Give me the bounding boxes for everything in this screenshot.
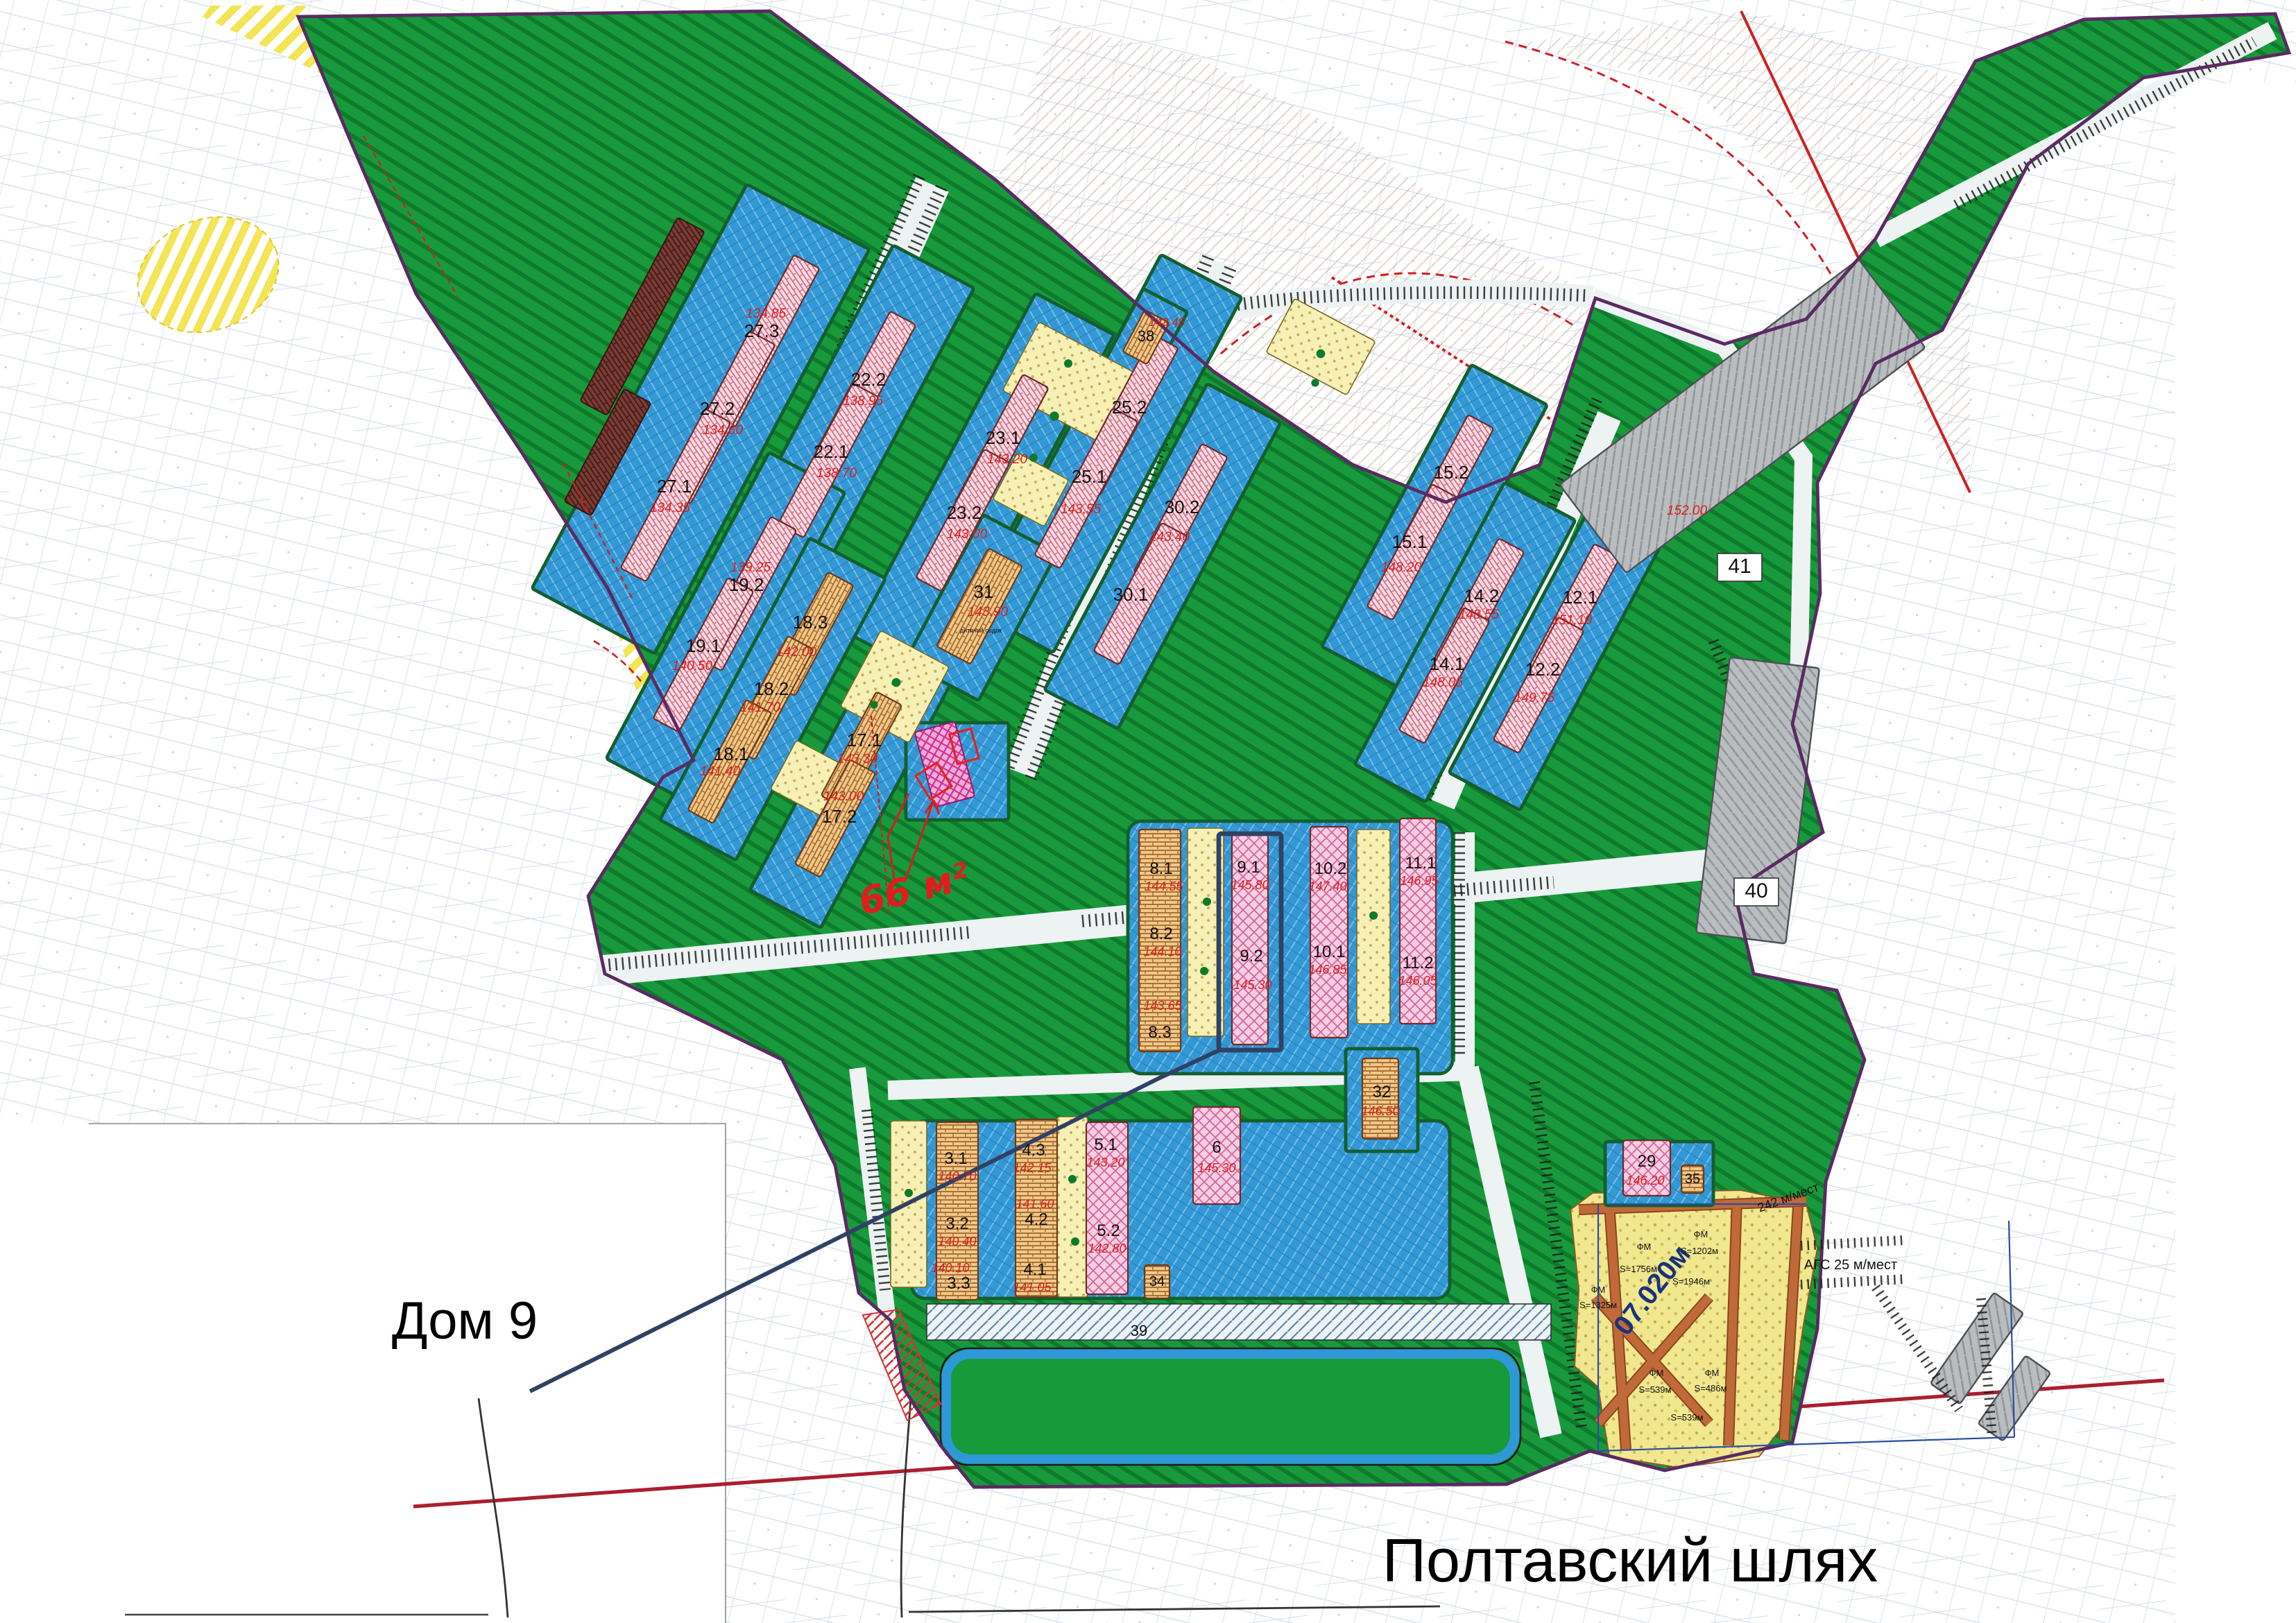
map-label: 12.1 bbox=[1563, 587, 1598, 608]
tree-icon bbox=[1071, 1237, 1079, 1246]
map-label: 4.3 bbox=[1022, 1141, 1045, 1160]
map-label: 143.45 bbox=[1149, 316, 1185, 329]
map-label: 23.1 bbox=[986, 427, 1021, 448]
map-label: 148.55 bbox=[1459, 608, 1500, 622]
map-label: 143.30 bbox=[837, 752, 878, 766]
map-label: 10.2 bbox=[1314, 859, 1347, 878]
map-label: 3.2 bbox=[945, 1214, 968, 1233]
map-label: 18.1 bbox=[714, 744, 749, 764]
map-label: 38 bbox=[1138, 327, 1154, 345]
map-label: 4.2 bbox=[1025, 1210, 1047, 1229]
map-label: ФМ bbox=[1591, 1285, 1606, 1295]
map-label: 5.2 bbox=[1097, 1221, 1120, 1240]
map-label: 140.50 bbox=[672, 659, 713, 673]
map-label: 148.20 bbox=[1381, 560, 1422, 575]
map-label: 146.85 bbox=[1308, 963, 1347, 977]
map-label: 27.2 bbox=[700, 398, 735, 419]
map-label: S=539м bbox=[1671, 1412, 1704, 1423]
map-label: 30.1 bbox=[1113, 584, 1149, 605]
map-label: S=1325м bbox=[1579, 1300, 1617, 1310]
tree-icon bbox=[1369, 911, 1378, 920]
map-label: 149.75 bbox=[1514, 691, 1555, 705]
map-label: 145.80 bbox=[1231, 878, 1269, 892]
map-label: 17.2 bbox=[822, 806, 857, 827]
map-label: S=1946м bbox=[1672, 1276, 1710, 1287]
map-label: 144.55 bbox=[1145, 879, 1183, 893]
map-label: 134.35 bbox=[650, 501, 691, 515]
map-label: 143.55 bbox=[1061, 502, 1102, 517]
map-label: 143.00 bbox=[947, 527, 988, 542]
scanned-master-plan-page: 27.3134.8527.2134.6027.1134.3522.2138.95… bbox=[0, 0, 2296, 1623]
map-label: дитячий садок bbox=[960, 627, 1002, 634]
map-label: 8.3 bbox=[1148, 1023, 1171, 1042]
map-label: 141.05 bbox=[1013, 1280, 1052, 1294]
map-label: 31 bbox=[974, 581, 994, 602]
map-label: 39 bbox=[1131, 1322, 1147, 1339]
master-plan-map: 27.3134.8527.2134.6027.1134.3522.2138.95… bbox=[0, 0, 2296, 1623]
play-45 bbox=[1057, 1117, 1088, 1297]
map-label: 14.2 bbox=[1464, 585, 1500, 606]
street-name-label: Полтавский шлях bbox=[1382, 1526, 1878, 1595]
map-label: 11.1 bbox=[1405, 854, 1437, 873]
bottom-left-blank bbox=[0, 1124, 726, 1623]
map-label: 10.1 bbox=[1313, 943, 1346, 961]
map-label: 32 bbox=[1373, 1083, 1391, 1101]
map-label: 146.20 bbox=[1626, 1174, 1664, 1187]
map-label: 144.10 bbox=[1143, 945, 1181, 959]
map-label: 146.95 bbox=[1400, 874, 1439, 888]
map-label: 3.1 bbox=[944, 1149, 967, 1168]
map-label: S=486м bbox=[1695, 1383, 1727, 1393]
map-label: 3.3 bbox=[947, 1274, 970, 1293]
dom9-label: Дом 9 bbox=[392, 1291, 538, 1350]
right-page-margin bbox=[2175, 83, 2296, 1623]
map-label: S=539м bbox=[1639, 1384, 1672, 1395]
map-label: 145.30 bbox=[1233, 978, 1271, 992]
map-label: ФМ bbox=[1694, 1229, 1708, 1239]
map-label: 143.20 bbox=[1086, 1156, 1124, 1169]
map-label: 141.40 bbox=[700, 764, 741, 779]
tree-icon bbox=[1064, 359, 1072, 368]
map-label: 142.15 bbox=[1013, 1161, 1052, 1175]
map-label: 9.1 bbox=[1237, 858, 1260, 877]
map-label: 6 bbox=[1212, 1138, 1221, 1157]
map-label: 22.1 bbox=[814, 441, 849, 462]
map-label: 25.1 bbox=[1072, 466, 1107, 487]
tree-icon bbox=[870, 701, 877, 708]
map-label: S=1202м bbox=[1681, 1246, 1718, 1256]
map-label: 27.3 bbox=[744, 320, 780, 341]
map-label: ФМ bbox=[1705, 1368, 1720, 1378]
b10-col bbox=[1310, 827, 1348, 1038]
map-label: 30.2 bbox=[1165, 497, 1200, 517]
tree-icon bbox=[1068, 1175, 1077, 1183]
walkway-strip bbox=[927, 1304, 1551, 1340]
map-label: 18.3 bbox=[793, 612, 828, 633]
map-label: 140.70 bbox=[938, 1169, 976, 1183]
sports-field bbox=[946, 1354, 1515, 1459]
map-label: 134.60 bbox=[703, 423, 744, 438]
map-label: 19.2 bbox=[729, 574, 764, 595]
map-label: 8.2 bbox=[1149, 925, 1172, 943]
map-label: 34 bbox=[1149, 1274, 1165, 1289]
map-label: 18.2 bbox=[754, 678, 789, 699]
map-label: 8.1 bbox=[1149, 859, 1172, 878]
map-label: S=1756м bbox=[1620, 1264, 1657, 1274]
map-label: 143.65 bbox=[1143, 999, 1182, 1013]
map-label: 152.00 bbox=[1667, 504, 1708, 518]
map-label: 23.2 bbox=[947, 502, 982, 523]
map-label: 25.2 bbox=[1112, 397, 1147, 418]
tree-icon bbox=[1050, 411, 1059, 421]
map-label: АГС 25 м/мест bbox=[1804, 1257, 1897, 1273]
map-label: 143.20 bbox=[987, 452, 1028, 467]
map-label: 138.70 bbox=[816, 466, 857, 481]
tree-icon bbox=[1311, 379, 1319, 386]
map-label: 145.30 bbox=[1197, 1161, 1235, 1175]
map-label: 11.2 bbox=[1403, 954, 1434, 972]
map-label: 148.05 bbox=[1423, 676, 1464, 690]
map-label: 140.40 bbox=[938, 1235, 976, 1248]
map-label: 19.1 bbox=[686, 635, 721, 656]
map-label: 27.1 bbox=[657, 476, 692, 497]
map-label: 41 bbox=[1728, 555, 1751, 578]
map-label: 151.10 bbox=[1552, 613, 1593, 628]
map-label: 146.05 bbox=[1398, 974, 1437, 988]
map-label: 141.60 bbox=[1016, 1197, 1054, 1211]
map-label: 29 bbox=[1638, 1152, 1656, 1171]
map-label: 141.70 bbox=[740, 701, 781, 715]
map-label: 140.10 bbox=[931, 1261, 969, 1275]
map-label: 143.40 bbox=[1149, 530, 1190, 544]
tree-icon bbox=[1317, 350, 1326, 359]
map-label: 15.2 bbox=[1434, 462, 1469, 483]
map-label: 143.00 bbox=[823, 789, 864, 804]
map-label: 40 bbox=[1745, 879, 1767, 902]
tree-icon bbox=[1203, 898, 1211, 906]
map-label: 146.50 bbox=[1361, 1104, 1399, 1118]
tree-icon bbox=[1200, 967, 1208, 975]
map-label: 5.1 bbox=[1094, 1135, 1117, 1154]
map-label: 14.1 bbox=[1430, 653, 1465, 674]
map-label: ФМ bbox=[1637, 1242, 1652, 1252]
map-label: 12.2 bbox=[1525, 659, 1561, 680]
map-label: 143.90 bbox=[968, 605, 1009, 619]
map-label: 35 bbox=[1685, 1171, 1700, 1187]
map-label: 139.25 bbox=[730, 560, 771, 575]
map-label: 22.2 bbox=[851, 369, 886, 390]
tree-icon bbox=[1029, 454, 1038, 462]
map-label: 142.00 bbox=[776, 645, 817, 660]
map-label: 17.1 bbox=[847, 730, 882, 750]
tree-icon bbox=[892, 678, 901, 687]
map-label: ФМ bbox=[1650, 1368, 1664, 1378]
map-label: 147.40 bbox=[1308, 879, 1346, 893]
map-label: 9.2 bbox=[1240, 947, 1262, 965]
map-label: 4.1 bbox=[1023, 1260, 1046, 1279]
map-label: 138.95 bbox=[843, 394, 884, 409]
play-1011 bbox=[1357, 830, 1390, 1024]
tree-icon bbox=[905, 1189, 913, 1197]
map-label: 15.1 bbox=[1392, 531, 1428, 552]
map-label: 134.85 bbox=[746, 307, 787, 321]
map-label: 142.80 bbox=[1088, 1242, 1126, 1255]
b11-col bbox=[1400, 818, 1436, 1024]
